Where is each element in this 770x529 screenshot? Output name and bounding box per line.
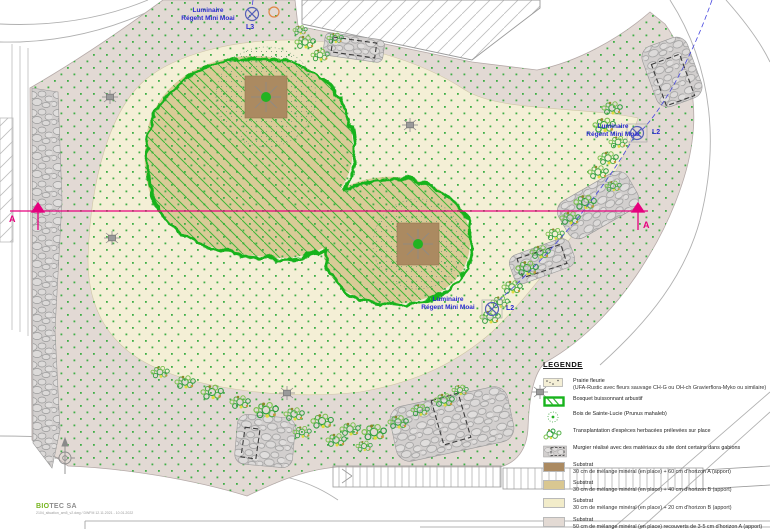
site-plan-page: LuminaireRégent Mini Moai L3 LuminaireRé…	[0, 0, 770, 529]
section-label-right: A	[643, 220, 650, 230]
substrat-gray-swatch	[543, 517, 567, 527]
legend-item-bosquet: Bosquet buissonnant arbustif	[543, 396, 769, 407]
legend-item-prairie: Prairie fleurie(UFA-Rustic avec fleurs s…	[543, 378, 769, 392]
legend-item-transplantation: Transplantation d'espèces herbacées prél…	[543, 428, 769, 441]
legend-item-bois: Bois de Sainte-Lucie (Prunus mahaleb)	[543, 411, 769, 423]
luminaire-label-bottom: LuminaireRégent Mini Moai	[398, 296, 498, 312]
legend-item-substrat-b40: Substrat30 cm de mélange minéral (en pla…	[543, 480, 769, 494]
tree-icon	[261, 92, 271, 102]
luminaire-label-right: LuminaireRégent Mini Moai	[563, 123, 663, 139]
section-label-left: A	[9, 214, 16, 224]
adjacent-building-left	[0, 44, 28, 336]
substrat-cream-swatch	[543, 498, 567, 508]
legend-item-substrat-b20: Substrat30 cm de mélange minéral (en pla…	[543, 498, 769, 512]
file-note: 2104_situation_am5_v2.dwg / DWFM 12.11.2…	[36, 511, 133, 515]
luminaire-label-top: LuminaireRégent Mini Moai	[158, 7, 258, 23]
tree-icon	[413, 239, 423, 249]
legend-item-substrat-50: Substrat50 cm de mélange minéral (en pla…	[543, 517, 769, 529]
legend-item-murgier: Murgier réalisé avec des matériaux du si…	[543, 445, 769, 458]
transplant-icon	[543, 428, 567, 441]
legend: LEGENDE Prairie fleurie(UFA-Rustic avec …	[543, 360, 769, 529]
luminaire-code-L3: L3	[246, 24, 254, 31]
luminaire-code-L2-bottom: L2	[506, 305, 514, 312]
legend-title: LEGENDE	[543, 360, 769, 369]
luminaire-code-L2-right: L2	[652, 129, 660, 136]
title-block: BIOTEC SA 2104_situation_am5_v2.dwg / DW…	[36, 503, 133, 515]
murgier-icon	[543, 445, 567, 458]
company-logo: BIOTEC SA	[36, 503, 133, 510]
tree-icon	[543, 411, 567, 423]
substrat-tan-swatch	[543, 480, 567, 490]
bosquet-swatch	[543, 396, 567, 407]
legend-item-substrat-a60: Substrat30 cm de mélange minéral (en pla…	[543, 462, 769, 476]
substrat-brown-swatch	[543, 462, 567, 472]
prairie-swatch	[543, 378, 567, 387]
